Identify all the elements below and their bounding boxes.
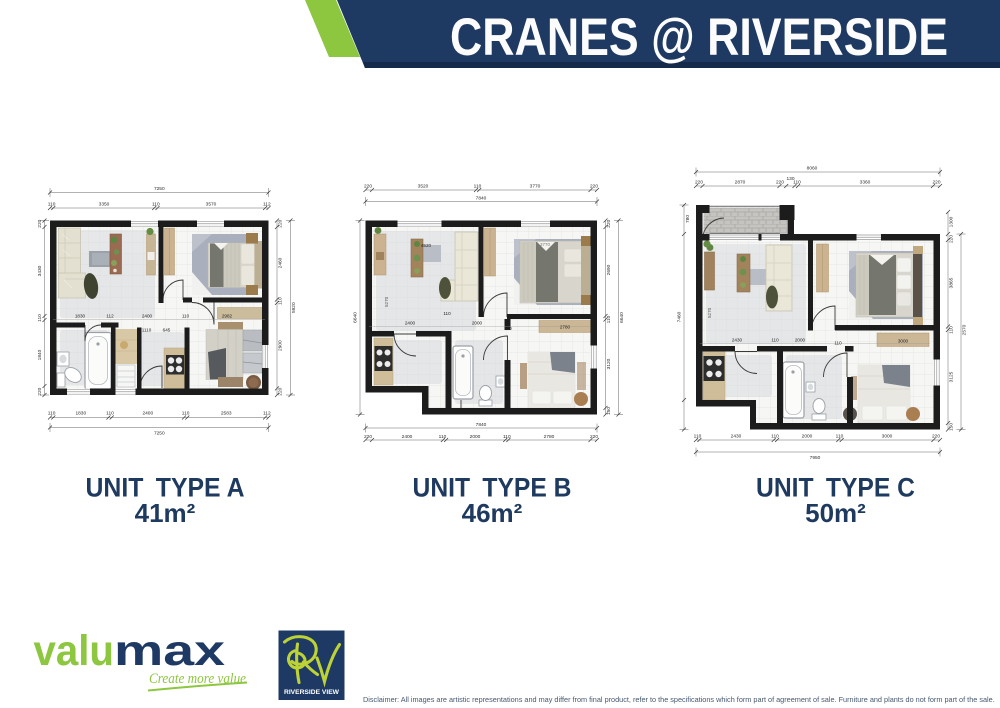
svg-text:220: 220 [949, 235, 955, 243]
svg-text:150: 150 [606, 407, 612, 415]
svg-text:2870: 2870 [735, 180, 746, 186]
svg-text:2400: 2400 [142, 411, 153, 417]
svg-text:2000: 2000 [795, 338, 806, 343]
svg-text:3360: 3360 [860, 180, 871, 186]
svg-text:110: 110 [37, 314, 43, 322]
svg-text:110: 110 [771, 434, 779, 440]
svg-text:2690: 2690 [606, 264, 612, 275]
svg-text:220: 220 [278, 219, 284, 227]
svg-text:2780: 2780 [560, 325, 571, 330]
svg-text:1840: 1840 [37, 349, 43, 360]
svg-text:2400: 2400 [142, 314, 153, 319]
svg-text:5270: 5270 [707, 307, 712, 318]
svg-text:110: 110 [48, 202, 56, 208]
svg-text:220: 220 [932, 434, 940, 440]
svg-text:41m²: 41m² [135, 498, 196, 528]
svg-text:645: 645 [163, 328, 171, 333]
svg-text:110: 110 [834, 341, 842, 346]
svg-text:8060: 8060 [807, 166, 818, 172]
svg-text:112: 112 [106, 314, 114, 319]
svg-text:220: 220 [37, 219, 43, 227]
svg-text:2430: 2430 [731, 434, 742, 440]
svg-text:110: 110 [48, 411, 56, 417]
svg-text:220: 220 [932, 180, 940, 186]
svg-text:220: 220 [364, 434, 372, 440]
svg-text:110: 110 [694, 434, 702, 440]
svg-text:110: 110 [771, 338, 779, 343]
svg-text:7250: 7250 [154, 431, 165, 437]
svg-text:2780: 2780 [544, 434, 555, 440]
svg-text:110: 110 [152, 202, 160, 208]
svg-text:7840: 7840 [476, 196, 487, 202]
svg-text:110: 110 [949, 326, 955, 334]
svg-text:110: 110 [443, 311, 451, 316]
svg-text:2900: 2900 [278, 340, 284, 351]
svg-text:max: max [114, 627, 225, 675]
svg-text:150: 150 [949, 423, 955, 431]
svg-text:1110: 1110 [142, 328, 152, 333]
svg-text:220: 220 [776, 180, 784, 186]
svg-text:3770: 3770 [530, 184, 541, 190]
svg-text:4520: 4520 [421, 243, 432, 248]
svg-text:220: 220 [278, 387, 284, 395]
svg-text:RIVERSIDE VIEW: RIVERSIDE VIEW [284, 689, 340, 696]
svg-text:110: 110 [182, 411, 190, 417]
svg-text:110: 110 [503, 434, 511, 440]
svg-text:3865: 3865 [949, 277, 955, 288]
svg-text:110: 110 [278, 297, 284, 305]
svg-text:2000: 2000 [472, 321, 483, 326]
svg-text:2000: 2000 [802, 434, 813, 440]
svg-text:Disclaimer: All images are art: Disclaimer: All images are artistic repr… [363, 695, 995, 704]
svg-text:1830: 1830 [75, 411, 86, 417]
svg-text:5920: 5920 [291, 302, 297, 313]
svg-text:2400: 2400 [405, 321, 416, 326]
svg-text:46m²: 46m² [462, 498, 523, 528]
svg-text:3000: 3000 [898, 339, 909, 344]
svg-text:220: 220 [606, 219, 612, 227]
svg-text:110: 110 [606, 315, 612, 323]
svg-text:110: 110 [836, 434, 844, 440]
svg-text:110: 110 [474, 184, 482, 190]
svg-text:112: 112 [263, 411, 271, 417]
svg-text:3770: 3770 [540, 242, 551, 247]
svg-text:1300: 1300 [949, 216, 955, 227]
svg-text:110: 110 [439, 434, 447, 440]
svg-text:2000: 2000 [470, 434, 481, 440]
svg-text:220: 220 [37, 387, 43, 395]
svg-text:3520: 3520 [418, 184, 429, 190]
svg-text:220: 220 [364, 184, 372, 190]
svg-text:7840: 7840 [476, 422, 487, 428]
svg-text:3570: 3570 [206, 202, 217, 208]
svg-text:3000: 3000 [882, 434, 893, 440]
svg-text:valu: valu [34, 627, 115, 675]
svg-text:2570: 2570 [962, 324, 968, 335]
svg-text:220: 220 [590, 184, 598, 190]
svg-text:2460: 2460 [278, 257, 284, 268]
svg-text:1830: 1830 [75, 314, 86, 319]
svg-text:5270: 5270 [384, 296, 389, 307]
svg-text:7950: 7950 [810, 455, 821, 461]
svg-text:110: 110 [504, 326, 512, 331]
svg-text:2982: 2982 [222, 314, 233, 319]
svg-text:110: 110 [182, 314, 190, 319]
svg-text:7460: 7460 [677, 311, 683, 322]
svg-text:2400: 2400 [402, 434, 413, 440]
svg-text:6640: 6640 [353, 312, 359, 323]
svg-text:2583: 2583 [221, 411, 232, 417]
svg-text:2430: 2430 [732, 338, 743, 343]
svg-text:780: 780 [685, 215, 691, 223]
svg-text:3350: 3350 [99, 202, 110, 208]
svg-text:3125: 3125 [949, 371, 955, 382]
svg-text:112: 112 [263, 202, 271, 208]
svg-text:7250: 7250 [154, 186, 165, 192]
svg-text:110: 110 [793, 180, 801, 186]
svg-text:110: 110 [106, 411, 114, 417]
svg-text:CRANES @ RIVERSIDE: CRANES @ RIVERSIDE [450, 8, 948, 67]
svg-text:220: 220 [695, 180, 703, 186]
svg-text:3430: 3430 [37, 265, 43, 276]
svg-text:3120: 3120 [606, 358, 612, 369]
svg-text:Create more value: Create more value [149, 671, 246, 687]
svg-text:6640: 6640 [619, 312, 625, 323]
svg-text:50m²: 50m² [805, 498, 866, 528]
svg-text:220: 220 [590, 434, 598, 440]
